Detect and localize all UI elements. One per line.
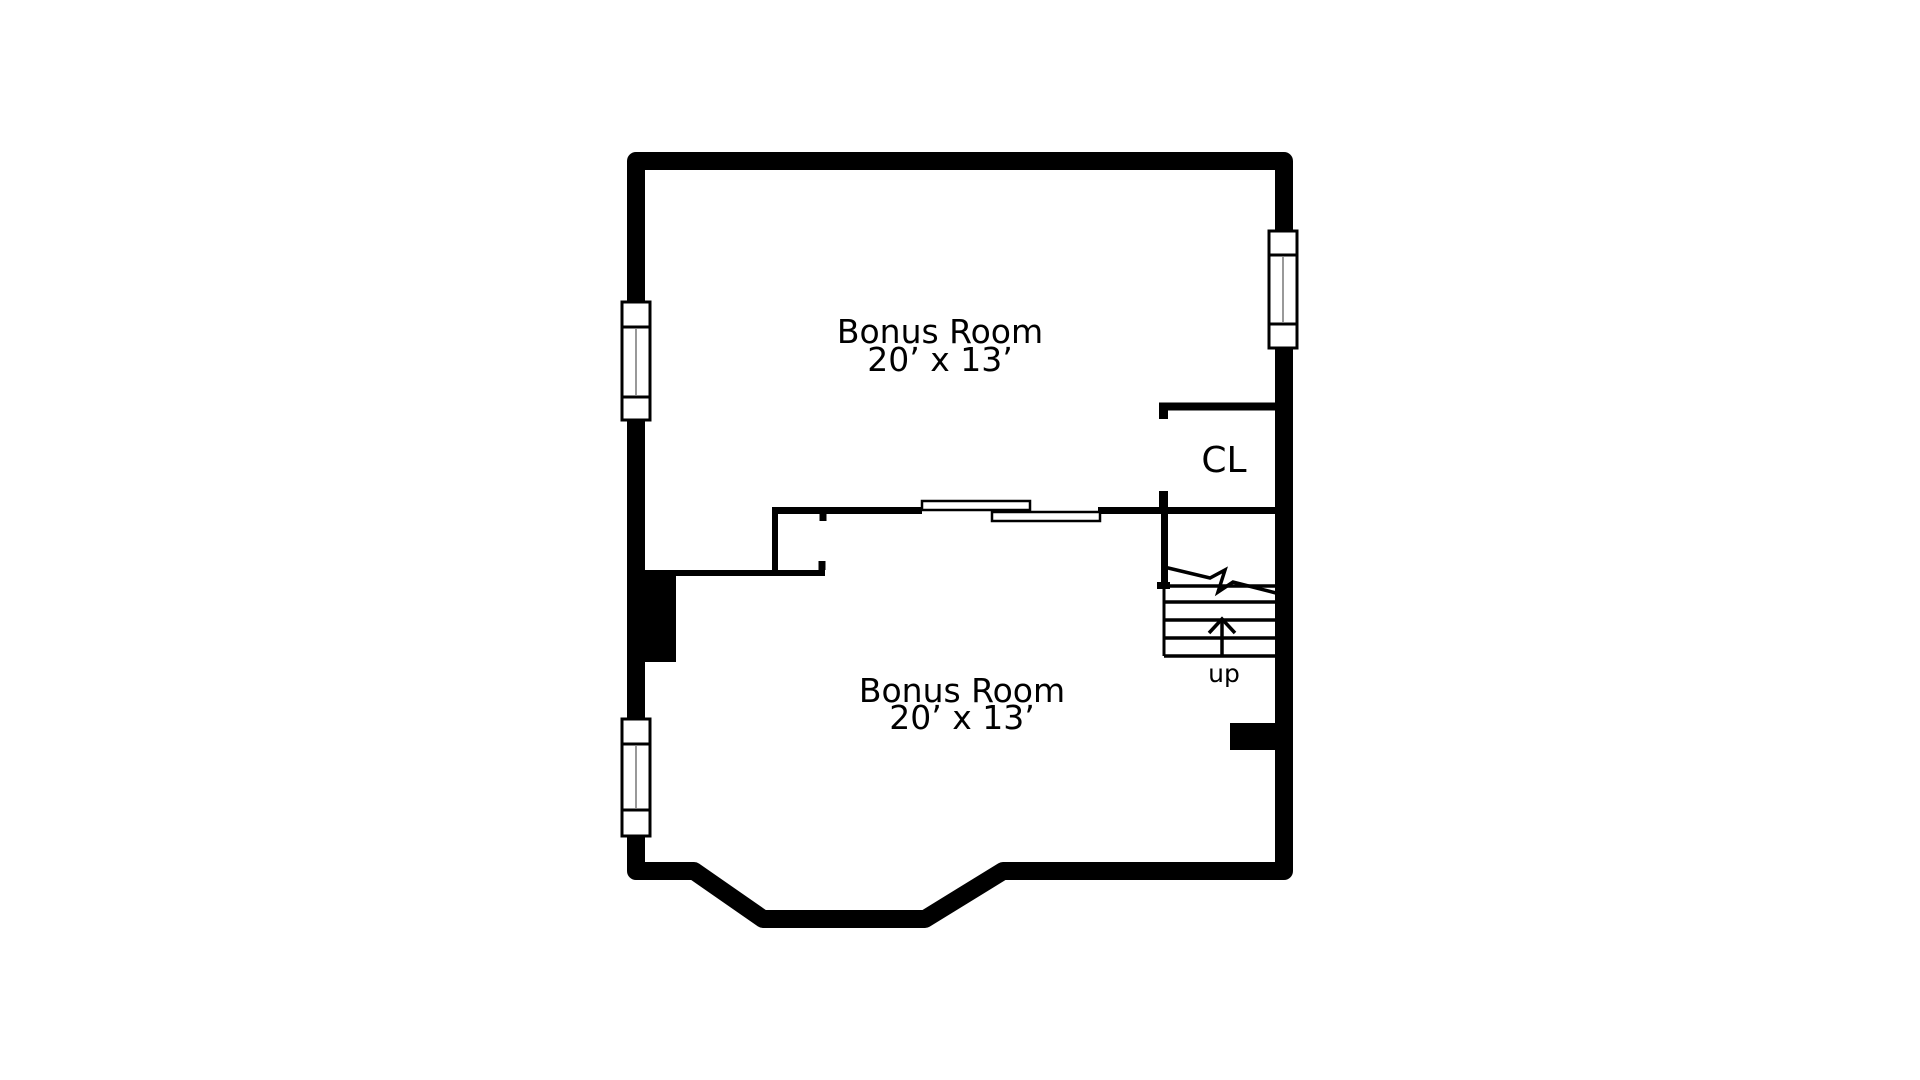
room-dimensions: 20’ x 13’ — [867, 340, 1012, 379]
wall-block-right — [1230, 723, 1284, 750]
sliding-door-panel-2 — [992, 512, 1100, 521]
sliding-door-icon — [922, 501, 1100, 521]
sliding-door-panel-1 — [922, 501, 1030, 510]
window-icon — [622, 719, 650, 836]
window-icon — [622, 302, 650, 420]
break-line-icon — [1164, 567, 1276, 593]
closet-label: CL — [1201, 440, 1246, 481]
wall-block-left — [627, 570, 676, 662]
floor-plan-canvas: Bonus Room 20’ x 13’ Bonus Room 20’ x 13… — [0, 0, 1920, 1080]
stairs-direction-label: up — [1208, 659, 1240, 688]
window-icon — [1269, 231, 1297, 348]
interior-walls — [630, 403, 1284, 587]
stairs-icon — [1164, 567, 1276, 656]
room-dimensions: 20’ x 13’ — [889, 698, 1034, 737]
floor-plan: Bonus Room 20’ x 13’ Bonus Room 20’ x 13… — [0, 0, 1920, 1080]
exterior-wall — [636, 161, 1284, 919]
